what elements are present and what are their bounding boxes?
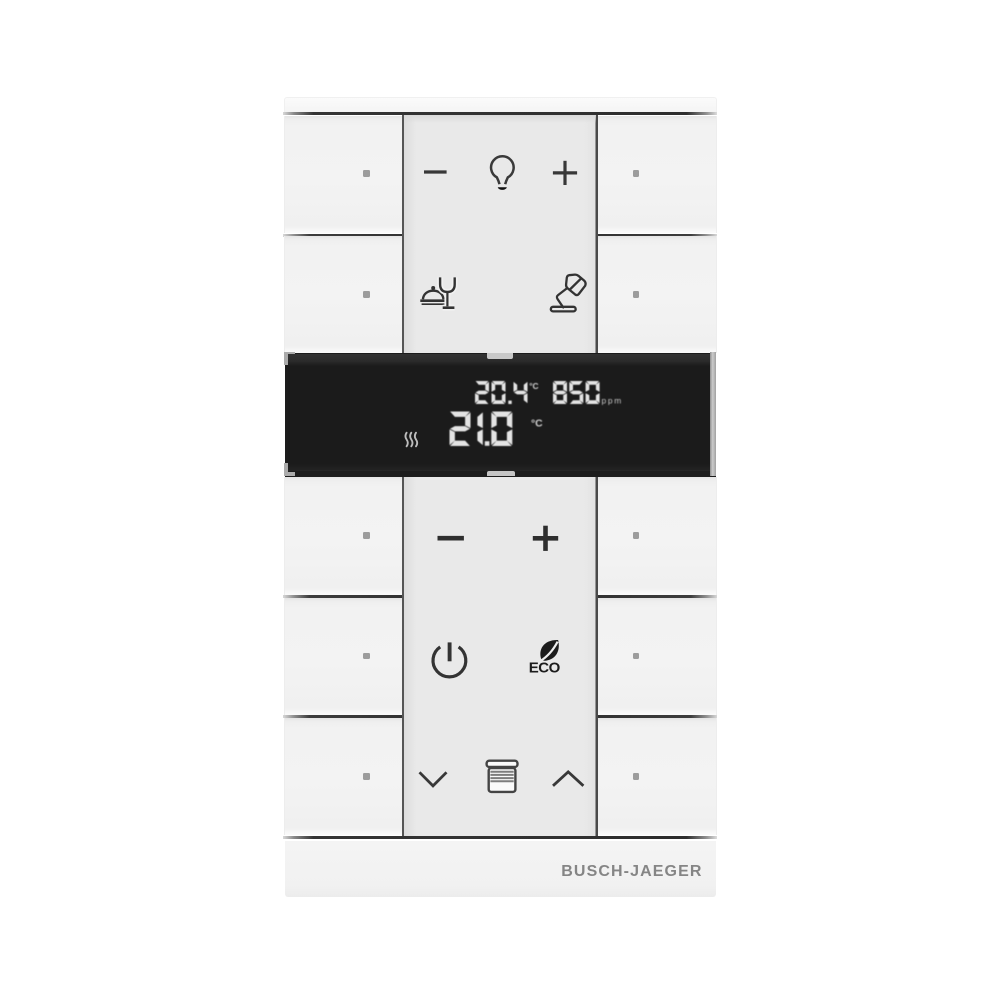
svg-text:°C: °C: [531, 419, 543, 430]
svg-text:ECO: ECO: [529, 659, 561, 676]
svg-text:ppm: ppm: [602, 395, 623, 405]
svg-text:°C: °C: [529, 381, 538, 391]
